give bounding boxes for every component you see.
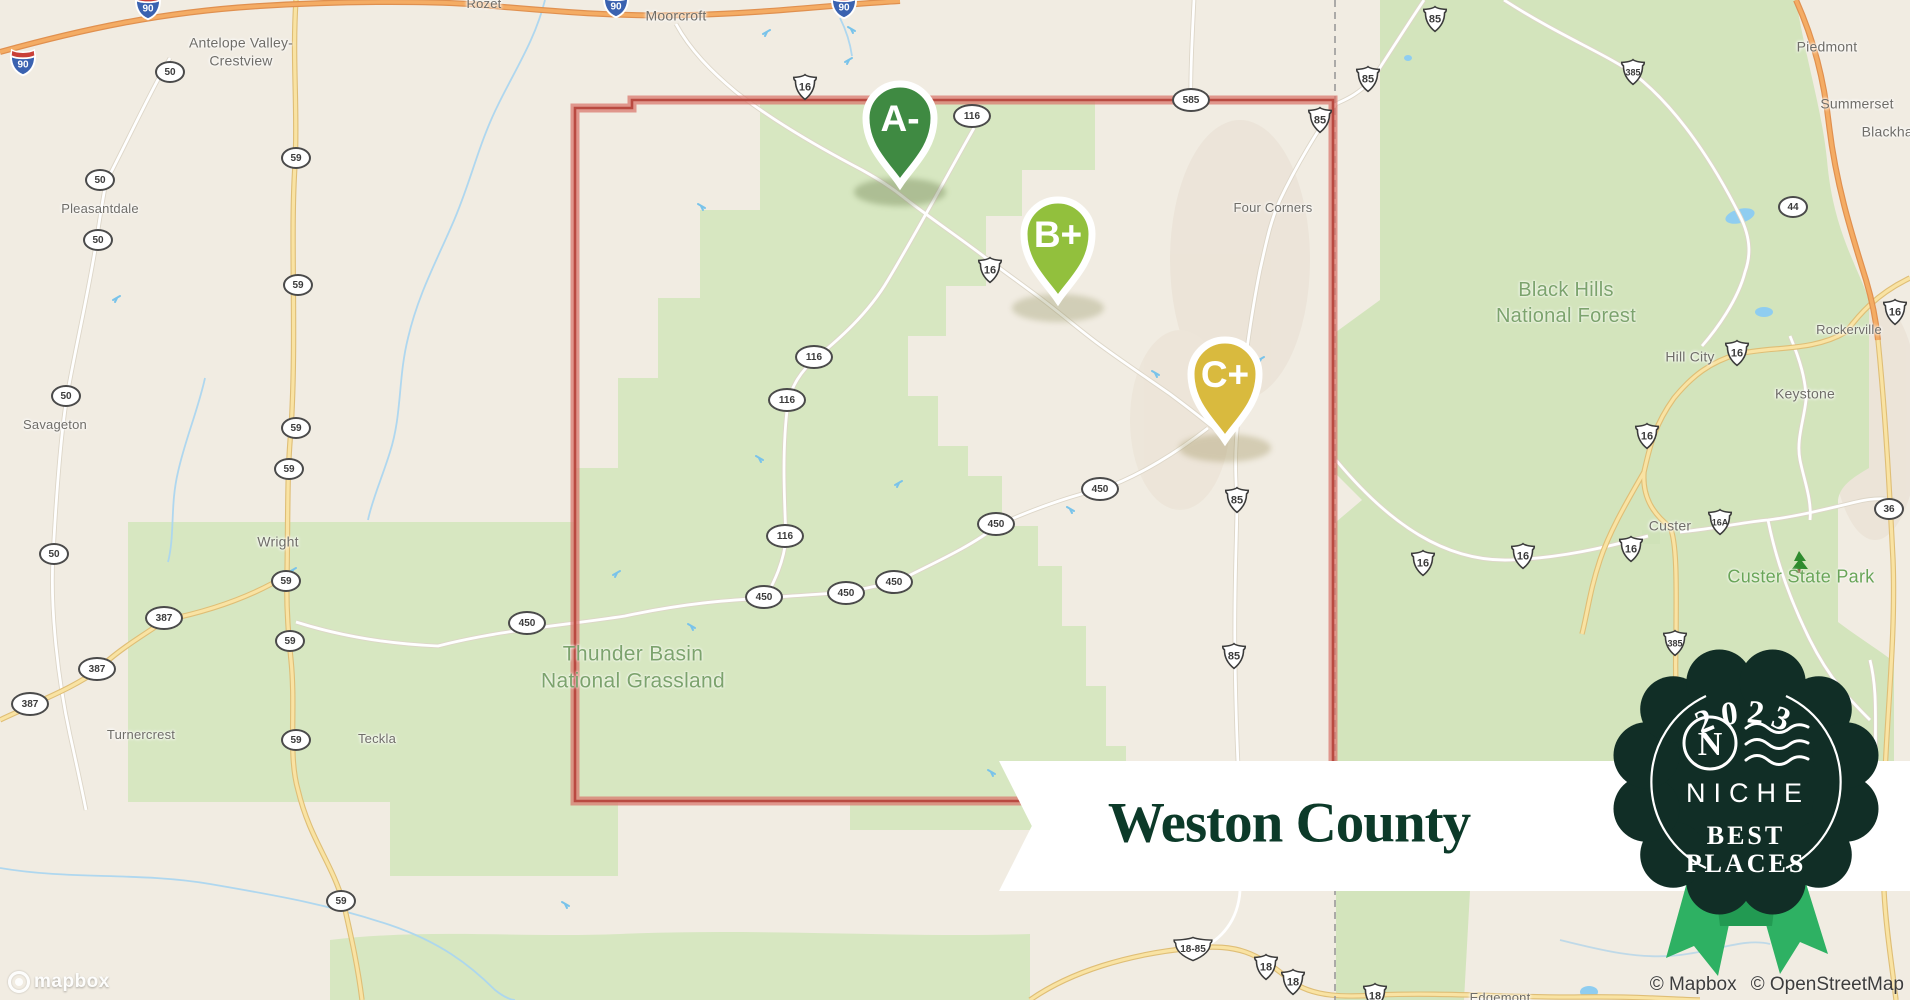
route-shield-387: 387	[145, 606, 183, 630]
route-shield-18-85: 18-85	[1172, 936, 1214, 962]
route-shield-450: 450	[827, 581, 865, 605]
route-shield-50: 50	[155, 61, 185, 83]
route-shield-36: 36	[1874, 498, 1904, 520]
town-label-hill-city: Hill City	[1665, 348, 1714, 366]
route-shield-90: 90	[601, 0, 631, 19]
route-shield-16: 16	[792, 74, 819, 101]
mapbox-logo[interactable]: mapbox	[8, 971, 110, 993]
town-label-wright: Wright	[257, 533, 298, 551]
route-shield-50: 50	[83, 229, 113, 251]
grade-pin-bplus[interactable]: B+	[1006, 188, 1110, 315]
route-shield-585: 585	[1172, 88, 1210, 112]
route-shield-387: 387	[78, 657, 116, 681]
route-shield-16: 16	[1618, 536, 1645, 563]
town-label-custer: Custer	[1649, 517, 1691, 535]
route-shield-385: 385	[1620, 59, 1647, 86]
svg-text:B+: B+	[1034, 214, 1082, 255]
town-label-teckla: Teckla	[358, 731, 396, 747]
town-label-piedmont: Piedmont	[1797, 38, 1858, 56]
route-shield-50: 50	[85, 169, 115, 191]
map-canvas[interactable]: 9090909050505050505959595959595959387387…	[0, 0, 1910, 1000]
town-label-edgemont: Edgemont	[1470, 990, 1531, 1000]
route-shield-450: 450	[977, 512, 1015, 536]
route-shield-85: 85	[1221, 643, 1248, 670]
route-shield-90: 90	[8, 48, 38, 77]
route-shield-90: 90	[133, 0, 163, 21]
route-shield-387: 387	[11, 692, 49, 716]
route-shield-90: 90	[829, 0, 859, 20]
badge-tagline-line2: PLACES	[1686, 849, 1807, 878]
town-label-pleasantdale: Pleasantdale	[61, 201, 139, 217]
badge-brand-text: NICHE	[1686, 778, 1810, 808]
map-attribution: © Mapbox © OpenStreetMap	[1650, 974, 1904, 996]
route-shield-85: 85	[1422, 6, 1449, 33]
town-label-savageton: Savageton	[23, 417, 87, 433]
route-shield-85: 85	[1307, 107, 1334, 134]
town-label-rozet: Rozet	[467, 0, 502, 12]
town-label-blackhawk: Blackhawk	[1862, 123, 1910, 141]
route-shield-16: 16	[1634, 423, 1661, 450]
route-shield-85: 85	[1224, 487, 1251, 514]
route-shield-116: 116	[768, 388, 806, 412]
route-shield-116: 116	[795, 345, 833, 369]
grade-pin-aminus[interactable]: A-	[848, 72, 952, 199]
attribution-mapbox-link[interactable]: © Mapbox	[1650, 974, 1737, 996]
route-shield-450: 450	[875, 570, 913, 594]
route-shield-59: 59	[271, 570, 301, 592]
mapbox-logo-word: mapbox	[34, 971, 110, 993]
area-label-black-hills-national-forest: Black Hills National Forest	[1496, 277, 1636, 329]
mapbox-logo-icon	[8, 971, 30, 993]
route-shield-16: 16	[1724, 340, 1751, 367]
route-shield-16: 16	[1510, 543, 1537, 570]
route-shield-18: 18	[1362, 983, 1389, 1000]
route-shield-16: 16	[1410, 550, 1437, 577]
town-label-antelope-valley-crestview: Antelope Valley- Crestview	[189, 35, 293, 70]
route-shield-450: 450	[508, 611, 546, 635]
route-shield-59: 59	[281, 417, 311, 439]
route-shield-59: 59	[283, 274, 313, 296]
route-shield-59: 59	[281, 729, 311, 751]
svg-text:N: N	[1698, 726, 1723, 763]
county-name-title: Weston County	[1059, 790, 1519, 855]
svg-text:C+: C+	[1201, 354, 1249, 395]
town-label-keystone: Keystone	[1775, 385, 1835, 403]
route-shield-50: 50	[51, 385, 81, 407]
area-label-thunder-basin-national-grassland: Thunder Basin National Grassland	[541, 641, 725, 696]
niche-best-places-badge: 2023 N NICHE BEST PLACES	[1604, 640, 1888, 980]
town-label-four-corners: Four Corners	[1234, 200, 1313, 216]
route-shield-59: 59	[281, 147, 311, 169]
route-shield-16: 16	[977, 257, 1004, 284]
route-shield-450: 450	[745, 585, 783, 609]
badge-tagline-line1: BEST	[1707, 821, 1786, 850]
town-label-summerset: Summerset	[1820, 95, 1893, 113]
route-shield-450: 450	[1081, 477, 1119, 501]
route-shield-59: 59	[326, 890, 356, 912]
town-label-rockerville: Rockerville	[1816, 322, 1882, 338]
route-shield-50: 50	[39, 543, 69, 565]
route-shield-16: 16	[1882, 299, 1909, 326]
route-shield-44: 44	[1778, 196, 1808, 218]
town-label-moorcroft: Moorcroft	[646, 7, 707, 25]
svg-text:A-: A-	[880, 98, 919, 139]
route-shield-18: 18	[1280, 969, 1307, 996]
area-label-custer-state-park: Custer State Park	[1727, 565, 1874, 588]
grade-pin-cplus[interactable]: C+	[1173, 328, 1277, 455]
route-shield-59: 59	[274, 458, 304, 480]
route-shield-59: 59	[275, 630, 305, 652]
route-shield-18: 18	[1253, 954, 1280, 981]
route-shield-85: 85	[1355, 66, 1382, 93]
route-shield-16a: 16A	[1707, 509, 1734, 536]
town-label-turnercrest: Turnercrest	[107, 727, 175, 743]
route-shield-116: 116	[953, 104, 991, 128]
attribution-osm-link[interactable]: © OpenStreetMap	[1751, 974, 1904, 996]
route-shield-116: 116	[766, 524, 804, 548]
